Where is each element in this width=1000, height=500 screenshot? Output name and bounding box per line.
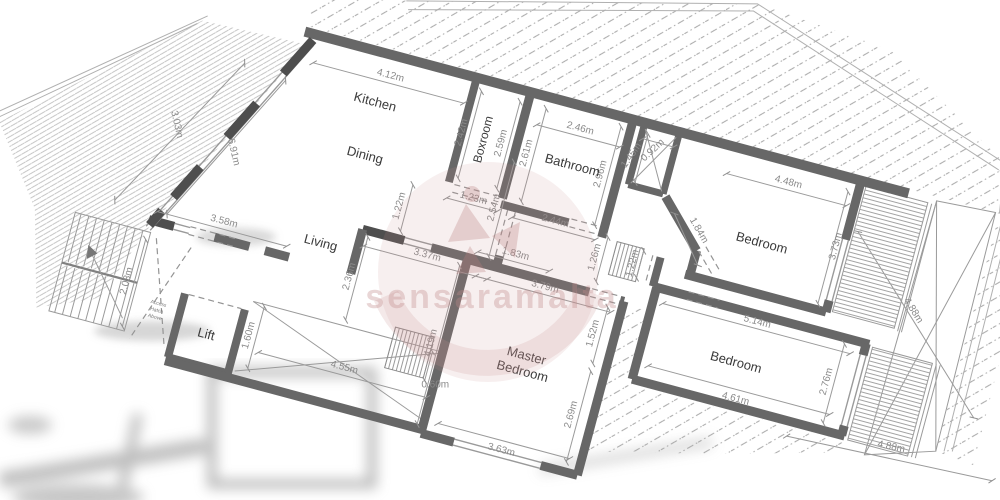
dim-label: 2.76m bbox=[818, 367, 836, 397]
dim-label: 6.91m bbox=[225, 137, 242, 167]
dim-label: 0.60m bbox=[421, 379, 449, 390]
room-label-boxroom: Boxroom bbox=[470, 114, 496, 164]
room-label-bathroom: Bathroom bbox=[543, 150, 601, 179]
watermark-text: sensaramalta bbox=[365, 278, 618, 316]
room-label-bedroom-bottom: Bedroom bbox=[709, 348, 764, 376]
dim-label: 2.36m bbox=[341, 262, 359, 292]
neighbour-hatch-top bbox=[306, 0, 1000, 214]
dim-label: 3.58m bbox=[209, 213, 239, 231]
floor-plan-page: 4.12m 3.03m 6.91m 2.42m 2.59m 1.23m 1.22… bbox=[0, 0, 1000, 500]
dim-label: 3.63m bbox=[486, 441, 516, 459]
dim-label: 2.46m bbox=[565, 120, 595, 138]
dim-label: 4.12m bbox=[376, 67, 406, 85]
dim-label: 4.48m bbox=[773, 173, 803, 191]
room-label-bedroom-top: Bedroom bbox=[734, 229, 789, 257]
dim-label: 3.73m bbox=[827, 232, 845, 262]
floor-plan-drawing: 4.12m 3.03m 6.91m 2.42m 2.59m 1.23m 1.22… bbox=[0, 0, 1000, 500]
boundary-hatch-right bbox=[935, 214, 1000, 466]
vent-shaft bbox=[628, 127, 678, 194]
dim-label: 2.59m bbox=[492, 128, 510, 158]
dim-label: 2.69m bbox=[562, 400, 580, 430]
room-label-lift: Lift bbox=[196, 324, 217, 343]
room-label-dining: Dining bbox=[345, 143, 384, 167]
room-label-living: Living bbox=[303, 231, 340, 254]
room-label-kitchen: Kitchen bbox=[352, 89, 398, 115]
